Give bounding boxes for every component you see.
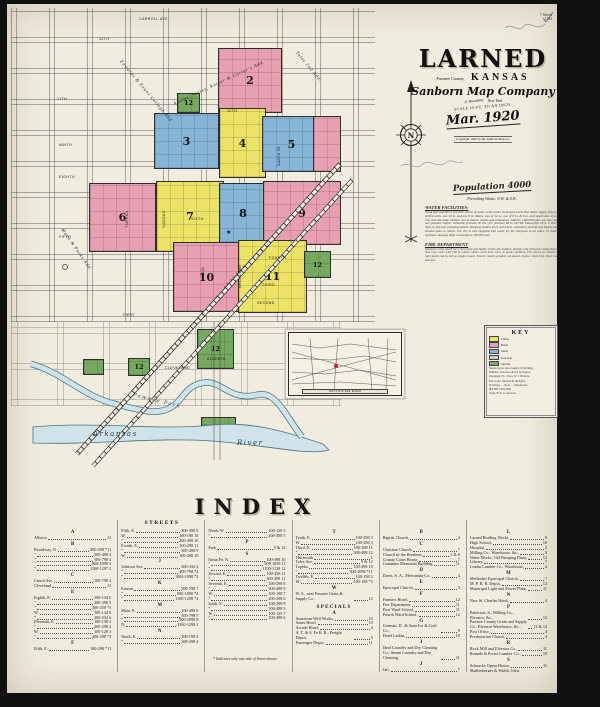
dot-leader	[37, 609, 91, 610]
map-key: KEY Frame Brick Stone	[484, 325, 558, 418]
key-row: Iron clad	[489, 355, 553, 360]
dot-leader	[434, 565, 455, 566]
dot-leader	[211, 610, 267, 611]
street-label-kansas: KANSAS	[162, 199, 166, 239]
dot-leader	[124, 578, 174, 579]
population-label: Population 4000	[453, 180, 532, 195]
dot-leader	[510, 602, 544, 603]
index-entry-name: Episcopal Church,	[383, 586, 414, 591]
index-entry: Rounds & Porter Lumber Co., 10	[470, 652, 547, 657]
dot-leader	[52, 587, 106, 588]
index-entry: ” 200-498 6	[208, 616, 285, 621]
dot-leader	[520, 580, 544, 581]
index-entry-sheet: 11	[456, 562, 460, 567]
index-entry-name: Municipal Light and Power Plant,	[470, 587, 527, 592]
publisher-city: New York	[488, 99, 503, 103]
dot-leader	[214, 615, 267, 616]
index-entry-sheet: 1100-1298 *2	[175, 597, 198, 602]
street-label-eighth: EIGHTH	[59, 175, 75, 179]
inset-map: SKETCH OF RAIL ROADS	[288, 332, 402, 396]
dot-leader	[214, 595, 267, 596]
dot-leader	[518, 650, 542, 651]
index-entry: ” 1100-1298 *2	[121, 597, 198, 602]
index-entry: W. 100-298 10	[121, 554, 198, 559]
dot-leader	[415, 611, 455, 612]
dot-leader	[217, 549, 273, 550]
index-column-2: Fifth, E. 300-498 9 W. 100-198 10 ”	[117, 520, 200, 672]
index-entry-name: Hotel Larkin,	[383, 634, 406, 639]
index-section: STREETS A Alberta 12 B	[31, 520, 549, 672]
dot-leader	[124, 552, 180, 553]
dot-leader	[493, 544, 542, 545]
dot-leader	[326, 644, 368, 645]
index-entry-name: ”	[121, 640, 123, 645]
index-entry: Episcopal Church, 3	[383, 586, 460, 591]
index-entry: Park 5 & 12	[208, 546, 285, 551]
key-rows: Frame Brick Stone Iron clad	[489, 336, 553, 366]
index-entry: N. 1100-1298 2	[121, 623, 198, 628]
standpipe-symbol	[63, 265, 68, 270]
dot-leader	[315, 578, 354, 579]
index-entry-name: Johnson Ave.	[121, 565, 143, 570]
index-entry-name: Jail,	[383, 668, 390, 672]
dot-leader	[354, 600, 368, 601]
dot-leader	[136, 532, 180, 533]
dot-leader	[506, 638, 544, 639]
index-entry-name: Eleventh, E.	[34, 620, 55, 625]
street-label-12th: 12TH	[99, 37, 109, 41]
index-entry-name: Fourth, E.	[121, 544, 138, 549]
street-label-first: FIRST	[123, 313, 135, 317]
larned-location-dot	[334, 364, 338, 368]
inset-railroad-lines	[290, 334, 398, 392]
key-row-label: Brick	[501, 343, 508, 347]
dot-leader	[37, 561, 93, 562]
dot-leader	[409, 601, 455, 602]
dot-leader	[37, 638, 91, 639]
key-fine-line: Scale 50 ft. to one inch.	[489, 392, 553, 396]
key-row-label: Frame	[501, 337, 509, 341]
index-entry-name: ”	[208, 534, 210, 539]
index-entry-name: Eighth, E.	[34, 596, 51, 601]
dot-leader	[229, 585, 268, 586]
river-label-river: River	[237, 439, 263, 447]
index-entry: ” 1100-1297 2	[34, 567, 111, 572]
index-entry-sheet: 4	[458, 536, 460, 541]
key-color-swatch	[489, 336, 499, 341]
key-row-label: Stone	[501, 349, 508, 353]
dot-leader	[124, 573, 178, 574]
dot-leader	[309, 568, 353, 569]
streets-heading: STREETS	[127, 520, 197, 526]
key-title: KEY	[489, 330, 553, 336]
index-entry-sheet: 4	[371, 626, 373, 631]
index-entry-name: Ideal Laundry and Dry Cleaning Co., Stea…	[383, 646, 440, 661]
index-entry-sheet: 12	[107, 584, 111, 589]
dot-leader	[423, 556, 449, 557]
index-entry-name: Doerr, A. A., Mercantile Co.,	[383, 574, 432, 579]
street-label-santafe: SANTA FE	[277, 136, 281, 176]
index-entry-sheet: 200-298 *3	[92, 635, 111, 640]
title-block: LARNED Pawnee County KANSAS Sanborn Map …	[407, 46, 559, 145]
index-entry-name: Presbyterian Church,	[470, 635, 505, 640]
index-entry-sheet: 1100-1297 2	[90, 567, 111, 572]
index-entry-name: ”	[34, 635, 36, 640]
pencil-scribble-1	[505, 24, 545, 29]
index-entry-sheet: 12	[107, 536, 111, 541]
dot-leader	[510, 539, 544, 540]
dot-leader	[312, 539, 355, 540]
dot-leader	[124, 617, 180, 618]
dot-leader	[410, 539, 457, 540]
dot-leader	[144, 568, 180, 569]
index-entry: Cummins Memorial Building, 11	[383, 562, 460, 567]
dot-leader	[37, 565, 91, 566]
dot-leader	[124, 621, 178, 622]
index-entry-name: W.	[121, 554, 126, 559]
index-entry: Ideal Laundry and Dry Cleaning Co., Stea…	[383, 646, 460, 661]
dot-leader	[124, 595, 176, 596]
dot-leader	[227, 575, 265, 576]
index-entry-name: ”	[34, 567, 36, 572]
dot-leader	[54, 582, 93, 583]
index-footnote: * Indicates only one side of Street show…	[213, 657, 277, 661]
dot-leader	[528, 628, 533, 629]
index-entry-sheet: 12	[369, 597, 373, 602]
fire-department-text: Volunteer chief and 8 men. One hook and …	[425, 248, 559, 263]
index-entry-sheet: 11	[456, 656, 460, 661]
index-entry: Fourth Ward School, 12	[383, 613, 460, 618]
county-label: Pawnee County	[436, 76, 464, 81]
index-entry-name: Cleveland	[34, 584, 51, 589]
index-entry: Doerr, A. A., Mercantile Co., 4	[383, 574, 460, 579]
inset-caption: SKETCH OF RAIL ROADS	[302, 389, 387, 394]
key-fine-print: Shaded parts show height of buildings. N…	[489, 367, 553, 396]
map-sheet: 2 12 3 4 5 6 7 8 9 10 11 12 12 12 12	[7, 4, 557, 693]
index-letter: J	[383, 662, 460, 667]
dot-leader	[211, 537, 267, 538]
key-row-label: Iron clad	[501, 356, 512, 360]
photo-background: 2 12 3 4 5 6 7 8 9 10 11 12 12 12 12	[0, 0, 600, 707]
dot-leader	[40, 614, 93, 615]
arkansas-river	[33, 424, 329, 452]
street-label-main: MAIN	[201, 252, 205, 292]
copyright-note: Copyright 1920 by the Sanborn Map Co.	[454, 136, 512, 143]
dot-leader	[312, 549, 353, 550]
index-entry-sheet: 11	[369, 641, 373, 646]
dot-leader	[134, 590, 180, 591]
specials-heading: SPECIALS	[296, 605, 373, 610]
dot-leader	[230, 561, 265, 562]
index-entry-name: Seventh, E.	[208, 582, 227, 587]
dot-leader	[441, 632, 457, 633]
index-entry: Cleveland 12	[34, 584, 111, 589]
index-entry-sheet: 4	[545, 565, 547, 570]
index-entry-sheet: 12	[456, 613, 460, 618]
index-entry: Municipal Light and Power Plant, 11	[470, 587, 547, 592]
index-column-6: L Larned Bottling Works, 9 High School, …	[466, 520, 549, 672]
index-entry-sheet: 200-298 4	[181, 640, 198, 645]
index-entry-name: Cummins Memorial Building,	[383, 562, 434, 567]
index-column-3: Ninth, W. 100-120 5 ” 200-498 5 P	[204, 520, 287, 672]
dot-leader	[441, 659, 455, 660]
water-facilities-text: Stand pipe and direct pressure system of…	[425, 211, 559, 238]
dot-leader	[318, 624, 368, 625]
index-entry-sheet: 100-298 10	[179, 554, 198, 559]
index-entry-sheet: 100-198 *3	[353, 580, 372, 585]
publisher-address: 11 Broadway	[464, 98, 484, 104]
index-entry-name: ”	[208, 616, 210, 621]
index-entry: Hotel Larkin, 10	[383, 634, 460, 639]
dot-leader	[52, 599, 93, 600]
street-label-broadway: BROADWAY	[238, 256, 242, 296]
street-label-ninth: NINTH	[59, 143, 72, 147]
index-entry-name: Alberta	[34, 536, 47, 541]
index-entry-sheet: 12	[543, 616, 547, 621]
dot-leader	[415, 589, 457, 590]
index-entry-name: Ninth, E.	[121, 635, 136, 640]
dot-leader	[406, 637, 454, 638]
index-entry: Jail, 7	[383, 668, 460, 672]
index-entry-sheet: 4	[545, 635, 547, 640]
street-label-11th: 11TH	[57, 97, 67, 101]
index-entry-name: Santa Fe, N.	[208, 558, 229, 563]
city-title: LARNED	[407, 46, 559, 71]
index-entry: New St. Charles Hotel, 4	[470, 599, 547, 604]
index-entry-name: W. S., near Pawnee Grain & Supply Co.	[296, 592, 353, 602]
index-entry-name: Sixth, E.	[208, 602, 223, 607]
index-entry-sheet: 200-498 5	[268, 534, 285, 539]
index-entry-sheet: 1004-1098 *2	[175, 575, 198, 580]
dot-leader	[124, 600, 174, 601]
fire-department-heading: FIRE DEPARTMENT	[425, 242, 559, 247]
index-entry-sheet: 10	[543, 652, 547, 657]
index-entry-name: N.	[121, 623, 125, 628]
index-entry: Passenger Depot, 11	[296, 641, 373, 646]
index-entry: Shallenberger & Walsh, Grist Mill, 11	[470, 669, 547, 672]
dot-leader	[211, 565, 263, 566]
index-entry-name: Main, E.	[121, 609, 136, 614]
index-heading: INDEX	[175, 494, 339, 519]
dot-leader	[226, 532, 268, 533]
dot-leader	[528, 590, 542, 591]
dot-leader	[137, 612, 181, 613]
railroad-track-2	[93, 180, 352, 466]
prevailing-winds: Prevailing Winds: N.W. & S.W.	[425, 196, 559, 201]
statistics-block: Population 4000 Prevailing Winds: N.W. &…	[425, 176, 559, 263]
index-entry: W. S., near Pawnee Grain & Supply Co. 12	[296, 592, 373, 602]
dot-leader	[224, 605, 268, 606]
index-entry-sheet: 11	[543, 664, 547, 669]
dot-leader	[139, 547, 178, 548]
dot-leader	[37, 604, 93, 605]
index-entry-name: Baptist Church,	[383, 536, 409, 541]
dot-leader	[391, 671, 457, 672]
dot-leader	[137, 638, 180, 639]
index-entry-name: Third, E.	[296, 546, 311, 551]
index-column-4: T Tenth, E. 100-298 3 W.	[292, 520, 375, 672]
dot-leader	[37, 570, 89, 571]
dot-leader	[528, 559, 542, 560]
key-color-swatch	[489, 349, 499, 354]
street-label-topeka: TOPEKA	[125, 199, 129, 239]
star-symbol: ★	[226, 229, 231, 236]
index-entry: Lindas Lumber Co., Warehouse, 4	[470, 565, 547, 570]
dot-leader	[432, 577, 456, 578]
index-entry-sheet: 7	[458, 668, 460, 672]
index-entry-name: W.	[296, 580, 301, 585]
street-label-sixth: SIXTH	[191, 217, 204, 221]
dot-leader	[528, 619, 542, 620]
dot-leader	[211, 590, 267, 591]
index-entry-sheet: 4	[545, 599, 547, 604]
index-entry-name: ”	[121, 575, 123, 580]
index-entry-name: Broadway, N.	[34, 548, 57, 553]
dot-leader	[49, 650, 89, 651]
key-row: Brick	[489, 342, 553, 347]
dot-leader	[126, 626, 176, 627]
dot-leader	[127, 537, 178, 538]
dot-leader	[40, 633, 93, 634]
dot-leader	[335, 620, 368, 621]
index-entry-sheet: 5 & 12	[274, 546, 286, 551]
index-entry-name: Lindas Lumber Co., Warehouse,	[470, 565, 524, 570]
key-row: Frame	[489, 336, 553, 341]
index-entry-name: Ninth, W.	[208, 529, 224, 534]
dot-leader	[37, 628, 93, 629]
index-entry-name: ”	[121, 597, 123, 602]
railroad-track-1	[77, 164, 340, 454]
key-row: Stone	[489, 349, 553, 354]
dot-leader	[522, 655, 542, 656]
dot-leader	[37, 556, 93, 557]
index-entry-sheet: 11	[543, 587, 547, 592]
dot-leader	[127, 557, 178, 558]
street-label-second: SECOND	[257, 301, 275, 305]
street-label-10th: 10TH	[227, 109, 237, 113]
index-entry-name: Second, E.	[208, 572, 226, 577]
dot-leader	[58, 551, 89, 552]
index-column-1: A Alberta 12 B Broadway, N.	[31, 520, 113, 672]
dot-leader	[412, 606, 455, 607]
sheet-corner-note: 7 Sheets 1382	[540, 13, 552, 22]
index-entry-sheet: 1100-1298 2	[177, 623, 198, 628]
index-entry-name: Shallenberger & Walsh, Grist Mill,	[470, 669, 527, 672]
index-entry-sheet: 200-498 6	[268, 616, 285, 621]
index-entry: Presbyterian Church, 4	[470, 635, 547, 640]
dot-leader	[301, 583, 352, 584]
index-entry-name: Rounds & Porter Lumber Co.,	[470, 652, 521, 657]
index-entry-name: Fourth Ward School,	[383, 613, 418, 618]
index-entry: Alberta 12	[34, 536, 111, 541]
dot-leader	[211, 619, 267, 620]
street-label-alberta: ALBERTA	[207, 357, 226, 361]
index-entry-sheet: 4	[458, 574, 460, 579]
index-entry: Fifth, E. 100-298 *11	[34, 647, 111, 652]
street-label-cleveland: CLEVELAND	[165, 366, 190, 370]
index-entry-name: Fifth, E.	[34, 647, 48, 652]
publisher-name: Sanborn Map Company	[407, 85, 559, 98]
key-color-swatch	[489, 355, 499, 360]
index-entry: Baptist Church, 4	[383, 536, 460, 541]
dot-leader	[124, 643, 180, 644]
index-entry: ” 200-298 *3	[34, 635, 111, 640]
index-entry: ” 200-498 5	[208, 534, 285, 539]
index-entry: ” 200-298 4	[121, 640, 198, 645]
index-column-5: B Baptist Church, 4 C Christian Churc	[379, 520, 462, 672]
dot-leader	[48, 539, 106, 540]
index-entry-name: Park	[208, 546, 216, 551]
key-color-swatch	[489, 342, 499, 347]
index-entry-name: New St. Charles Hotel,	[470, 599, 509, 604]
index-entry-sheet: 10	[456, 634, 460, 639]
river-label-arkansas: Arkansas	[93, 430, 138, 438]
index-entry-sheet: 100-298 *11	[90, 647, 111, 652]
street-label-carroll: CARROLL AVE.	[139, 17, 169, 21]
index-entry: ” 1004-1098 *2	[121, 575, 198, 580]
dot-leader	[525, 568, 544, 569]
dot-leader	[419, 616, 455, 617]
street-label-fourth: FOURTH	[269, 256, 286, 260]
corner-line-2: 1382	[540, 17, 552, 21]
state-label: KANSAS	[471, 72, 530, 83]
pencil-scribble-2	[401, 161, 463, 167]
index-entry-sheet: 3	[458, 586, 460, 591]
dot-leader	[56, 623, 93, 624]
index-entry: W. 100-198 *3	[296, 580, 373, 585]
dot-leader	[354, 639, 370, 640]
index-entry-name: Passenger Depot,	[296, 641, 325, 646]
street-label-third: THIRD	[262, 283, 275, 287]
